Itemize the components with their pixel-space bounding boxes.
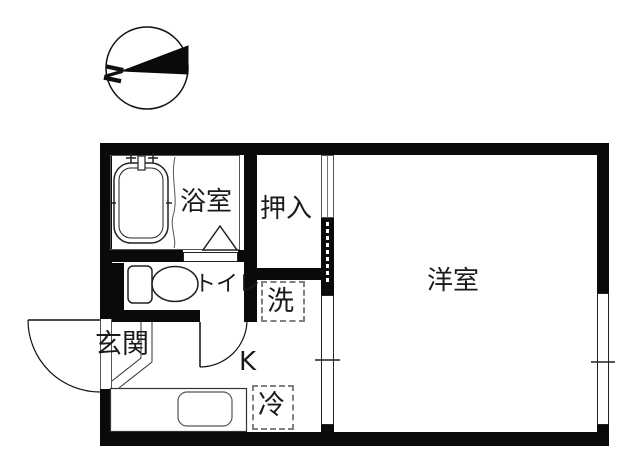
wall-divider-bottom — [321, 425, 334, 432]
bathroom-label: 浴室 — [180, 189, 232, 215]
bathtub-icon — [110, 153, 172, 243]
floorplan-canvas: N — [0, 0, 633, 458]
fixtures-layer: N — [0, 0, 633, 458]
wall-bottom — [100, 432, 609, 446]
western-room-label: 洋室 — [427, 268, 479, 294]
entrance-door-icon — [28, 320, 100, 392]
kitchen-counter-icon — [111, 389, 247, 432]
bathroom-door-threshold — [183, 252, 238, 262]
entrance-label: 玄関 — [95, 331, 149, 358]
toilet-icon — [128, 266, 198, 303]
wall-right-lower — [597, 425, 609, 446]
toilet-label: トイレ — [194, 274, 260, 296]
compass-north-label: N — [99, 61, 131, 86]
wall-divider-mid — [321, 218, 334, 295]
wall-left-upper — [100, 143, 112, 319]
right-wall-window — [597, 293, 609, 425]
closet-sliding-door — [321, 155, 334, 218]
wall-toilet-left-stub — [112, 263, 124, 310]
wall-bath-bottom-right — [238, 250, 244, 262]
closet-label: 押入 — [260, 196, 312, 222]
wall-toilet-bottom — [100, 310, 200, 322]
washing-machine-box — [261, 281, 305, 322]
room-divider-sliding-door — [321, 295, 334, 425]
compass-north-icon: N — [99, 27, 188, 109]
wall-left-lower — [100, 388, 112, 446]
refrigerator-box — [252, 385, 294, 430]
kitchen-label: K — [239, 349, 256, 375]
wall-top — [100, 143, 609, 155]
wall-right-upper — [597, 143, 609, 293]
bathroom-door-icon — [203, 226, 237, 250]
wall-bath-bottom-left — [112, 250, 183, 262]
